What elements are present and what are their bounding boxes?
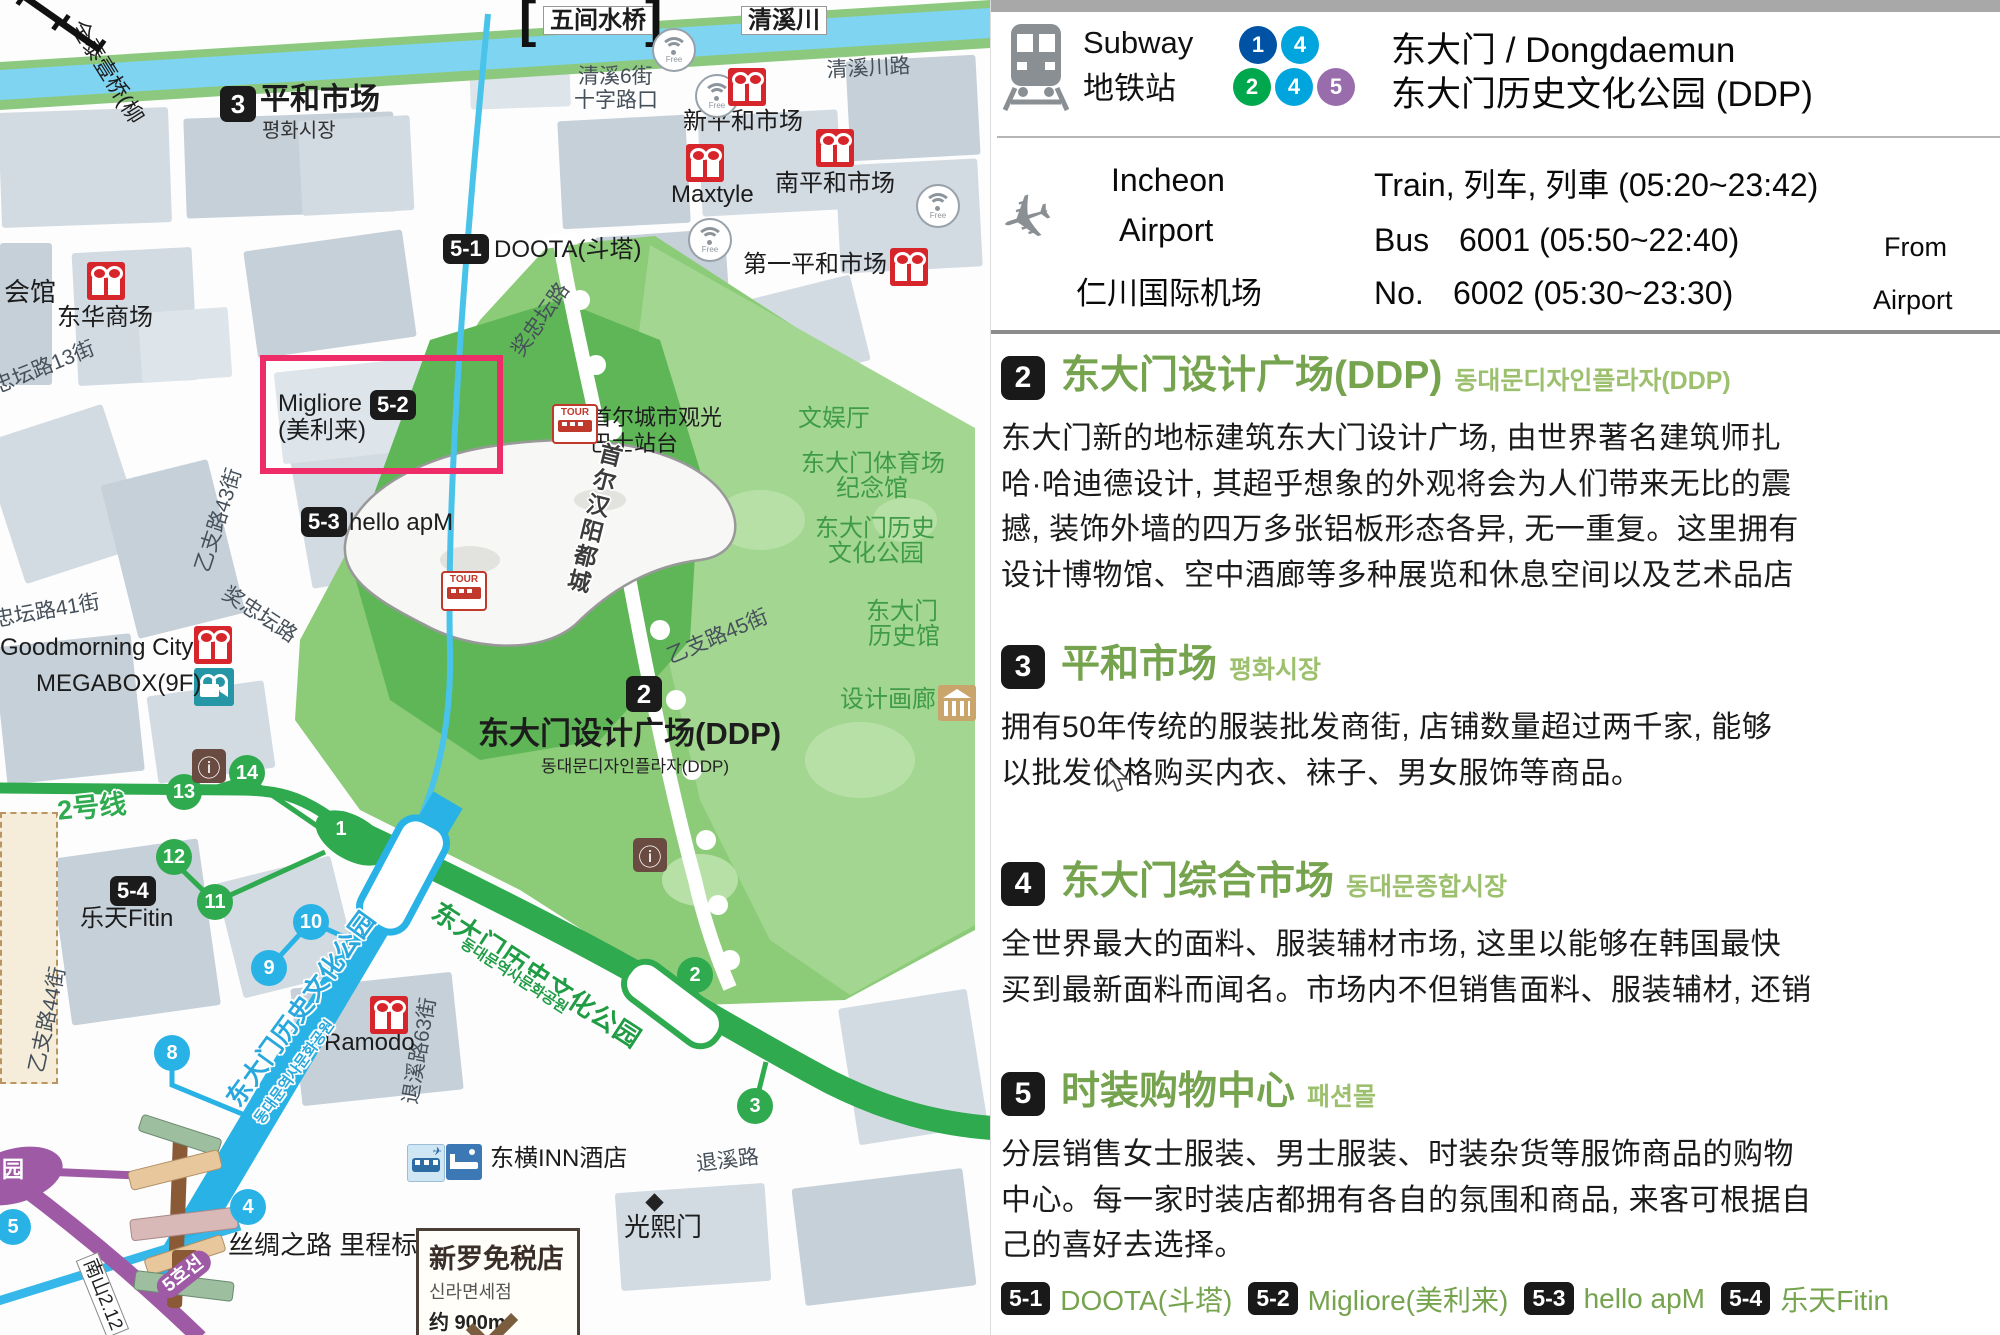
mall-label-5-2: Migliore(美利来) [1308,1279,1509,1319]
dongdaemun-tourist-map: ✈ 新罗免税店 신라면세점 约 900m 清溪川路清溪6街十字路口忠坛路13街乙… [0,0,2000,1335]
section-3: 3平和市场평화시장拥有50年传统的服装批发商街, 店铺数量超过两千家, 能够以批… [1001,633,1993,796]
section-5-body-line: 分层销售女士服装、男士服装、时装杂货等服饰商品的购物 [1001,1132,1993,1178]
place-pyounghwa: 平和市场 [260,84,380,116]
park-histpark-1: 东大门历史 [815,516,935,541]
bridge-ogansu-label: 五间水桥 [543,6,653,35]
place-migliore: Migliore [278,391,362,416]
subway-line-2-badge: 2 [1233,68,1271,106]
section-4-body: 全世界最大的面料、服装辅材市场, 这里以能够在韩国最快买到最新面料而闻名。市场内… [1001,922,1993,1013]
bus-word: Bus [1374,222,1429,259]
ddp-title: 东大门设计广场(DDP) [478,718,781,751]
section-2-title-kr: 동대문디자인플라자(DDP) [1454,361,1730,400]
info-panel: Subway 地铁站 14245 东大门 / Dongdaemun 东大门历史文… [990,0,2000,1335]
place-megabox: MEGABOX(9F) [36,671,201,696]
section-5-body-line: 己的喜好去选择。 [1001,1223,1993,1269]
section-4: 4东大门综合市场동대문종합시장全世界最大的面料、服装辅材市场, 这里以能够在韩国… [1001,850,1993,1013]
section-4-body-line: 全世界最大的面料、服装辅材市场, 这里以能够在韩国最快 [1001,922,1993,968]
shilla-name-cn: 新罗免税店 [429,1237,567,1276]
exit-1-marker: 1 [323,811,359,847]
road-cheonggye-6: 清溪6街 [578,66,653,88]
section-2-title: 东大门设计广场(DDP) [1061,344,1442,400]
market-gift-icon [686,144,724,182]
place-gwanghuimun: 光熙门 [624,1214,702,1241]
exit-11-marker: 11 [197,884,233,920]
subway-train-icon [1003,22,1069,114]
badge-3: 3 [220,86,256,122]
section-2: 2东大门设计广场(DDP)동대문디자인플라자(DDP)东大门新的地标建筑东大门设… [1001,344,1993,598]
place-lottefitin: 乐天Fitin [80,906,173,931]
tour-bus-icon: TOUR [441,571,487,611]
mall-list: 5-1DOOTA(斗塔)5-2Migliore(美利来)5-3hello apM… [1001,1279,1993,1319]
tourist-info-icon: ⓘ [192,749,226,783]
bus-6001: 6001 (05:50~22:40) [1459,222,1739,259]
place-donghwa: 东华商场 [57,305,153,330]
road-crossroad: 十字路口 [574,90,658,112]
section-3-title-kr: 평화시장 [1229,650,1321,689]
mall-badge-5-3: 5-3 [1524,1282,1573,1315]
section-2-body-line: 设计博物馆、空中酒廊等多种展览和休息空间以及艺术品店 [1001,553,1993,599]
section-5-body: 分层销售女士服装、男士服装、时装杂货等服饰商品的购物中心。每一家时装店都拥有各自… [1001,1132,1993,1269]
place-hall: 会馆 [4,279,56,306]
free-wifi-icon: Free [916,184,960,228]
park-culture-hall: 文娱厅 [798,406,870,431]
no-word: No. [1374,275,1424,312]
section-2-body-line: 哈·哈迪德设计, 其超乎想象的外观将会为人们带来无比的震 [1001,462,1993,508]
exit-2-marker: 2 [677,957,713,993]
from-word: From [1884,232,1947,263]
free-wifi-icon: Free [688,218,732,262]
free-wifi-icon: Free [652,28,696,72]
line5-park-char: 园 [2,1158,24,1181]
place-migliore-cn: (美利来) [278,418,366,443]
airplane-icon: ✈ [991,176,1063,261]
section-5-heading: 5时装购物中心패션몰 [1001,1060,1993,1116]
market-gift-icon [370,996,408,1034]
section-4-badge: 4 [1001,862,1045,906]
bridge-bracket-left: [ [519,0,536,47]
section-5-body-line: 中心。每一家时装店都拥有各自的氛围和商品, 来客可根据自 [1001,1178,1993,1224]
market-gift-icon [890,248,928,286]
from-airport-word: Airport [1873,285,1953,316]
city-block [557,115,690,230]
section-4-heading: 4东大门综合市场동대문종합시장 [1001,850,1993,906]
market-gift-icon [728,68,766,106]
section-4-body-line: 买到最新面料而闻名。市场内不但销售面料、服装辅材, 还销 [1001,968,1993,1014]
line2-label: 2号线 [56,790,128,825]
subway-line-5-badge: 5 [1317,68,1355,106]
section-5-title-kr: 패션몰 [1307,1077,1376,1116]
section-3-title: 平和市场 [1061,633,1217,689]
mall-label-5-3: hello apM [1584,1283,1705,1315]
bus-6002: 6002 (05:30~23:30) [1453,275,1733,312]
place-nampyounghwa: 南平和市场 [775,171,895,196]
park-histmuseum-2: 历史馆 [868,624,940,649]
exit-5-marker: 5 [0,1209,31,1245]
badge-5-4: 5-4 [110,876,156,906]
subway-line-4-badge: 4 [1275,68,1313,106]
mall-badge-5-1: 5-1 [1001,1282,1050,1315]
market-gift-icon [87,262,125,300]
road-euljiro45: 乙支路45街 [664,606,771,668]
section-2-body: 东大门新的地标建筑东大门设计广场, 由世界著名建筑师扎哈·哈迪德设计, 其超乎想… [1001,416,1993,598]
road-toegyero: 退溪路 [695,1146,760,1176]
market-gift-icon [194,626,232,664]
exit-3-marker: 3 [737,1088,773,1124]
wall-label: 首尔汉阳都城 [562,440,623,597]
airport-name-2: Airport [1119,212,1213,249]
section-2-heading: 2东大门设计广场(DDP)동대문디자인플라자(DDP) [1001,344,1993,400]
section-5-badge: 5 [1001,1072,1045,1116]
airport-bus-stop-icon: ✈ [407,1144,445,1182]
park-design-gallery: 设计画廊 [840,687,936,712]
city-block [791,1168,976,1306]
place-silkroad-milestone: 丝绸之路 里程标 [228,1232,417,1259]
city-block [0,107,172,228]
fortress-wall [560,243,730,988]
section-5-title: 时装购物中心 [1061,1060,1295,1116]
mouse-cursor [1105,760,1131,794]
subway-line-4-badge: 4 [1281,26,1319,64]
exit-10-marker: 10 [293,904,329,940]
section-3-badge: 3 [1001,645,1045,689]
section-2-body-line: 撼, 装饰外墙的四万多张铝板形态各异, 无一重复。这里拥有 [1001,507,1993,553]
place-citytour-1: 首尔城市观光 [590,406,722,429]
section-3-body-line: 以批发价格购买内衣、袜子、男女服饰等商品。 [1001,751,1993,797]
city-block [49,838,221,1025]
badge-5-1: 5-1 [443,234,489,264]
city-block [469,58,571,109]
separator-2 [991,330,2000,334]
mall-badge-5-4: 5-4 [1721,1282,1770,1315]
map-canvas: ✈ 新罗免税店 신라면세점 约 900m 清溪川路清溪6街十字路口忠坛路13街乙… [0,0,990,1335]
separator-1 [997,136,2000,138]
mall-label-5-4: 乐天Fitin [1780,1279,1889,1319]
section-5: 5时装购物中心패션몰分层销售女士服装、男士服装、时装杂货等服饰商品的购物中心。每… [1001,1060,1993,1319]
tour-bus-icon: TOUR [552,404,598,444]
place-helloapm: hello apM [349,510,453,535]
station-title-2: 东大门历史文化公园 (DDP) [1391,66,1813,117]
park-stadium-1: 东大门体育场 [801,451,945,476]
subway-line-1-badge: 1 [1239,26,1277,64]
badge-5-2: 5-2 [370,390,416,420]
subway-label-cn: 地铁站 [1083,63,1176,108]
exit-12-marker: 12 [156,839,192,875]
market-gift-icon [816,129,854,167]
place-shinpyounghwa: 新平和市场 [683,109,803,134]
tourist-info-icon: ⓘ [633,838,667,872]
line2-station-label: 东大门历史文化公园 [427,898,646,1053]
exit-14-marker: 14 [229,755,265,791]
river-label: 清溪川 [741,6,827,35]
section-2-body-line: 东大门新的地标建筑东大门设计广场, 由世界著名建筑师扎 [1001,416,1993,462]
section-3-body: 拥有50年传统的服装批发商街, 店铺数量超过两千家, 能够以批发价格购买内衣、袜… [1001,705,1993,796]
section-4-title-kr: 동대문종합시장 [1346,867,1507,906]
airport-name-cn: 仁川国际机场 [1076,268,1262,313]
place-doota: DOOTA(斗塔) [494,237,642,262]
mall-label-5-1: DOOTA(斗塔) [1060,1279,1232,1319]
badge-2: 2 [626,676,662,712]
road-namsan: 南山2.12 [76,1252,129,1335]
museum-icon [938,685,976,721]
panel-top-bar [991,0,2000,12]
section-2-badge: 2 [1001,356,1045,400]
city-block [838,989,988,1146]
place-maxtyle: Maxtyle [671,182,754,207]
badge-5-3: 5-3 [301,507,347,537]
city-block [243,229,416,358]
road-cheonggyecheon-ro: 清溪川路 [826,56,911,82]
place-jeil: 第一平和市场 [743,252,887,277]
exit-9-marker: 9 [251,950,287,986]
exit-4-marker: 4 [230,1189,266,1225]
place-goodmorning: Goodmorning City [0,635,193,660]
park-histpark-2: 文化公园 [828,541,924,566]
airport-train-info: Train, 列车, 列車 (05:20~23:42) [1374,160,1818,206]
road-41: 忠坛路41街 [0,591,102,631]
exit-8-marker: 8 [154,1035,190,1071]
city-block [731,275,871,390]
airport-name-1: Incheon [1111,162,1225,199]
subway-label-en: Subway [1083,25,1193,61]
section-3-heading: 3平和市场평화시장 [1001,633,1993,689]
hotel-icon [446,1144,482,1180]
ddp-title-kr: 동대문디자인플라자(DDP) [541,758,729,776]
place-pyounghwa-kr: 평화시장 [262,121,336,142]
park-histmuseum-1: 东大门 [866,599,938,624]
section-3-body-line: 拥有50年传统的服装批发商街, 店铺数量超过两千家, 能够 [1001,705,1993,751]
road-jangchungdan-2: 奖忠坛路 [508,279,574,360]
mall-badge-5-2: 5-2 [1248,1282,1297,1315]
park-stadium-2: 纪念馆 [836,476,908,501]
section-4-title: 东大门综合市场 [1061,850,1334,906]
place-toyoko-inn: 东横INN酒店 [490,1146,627,1171]
